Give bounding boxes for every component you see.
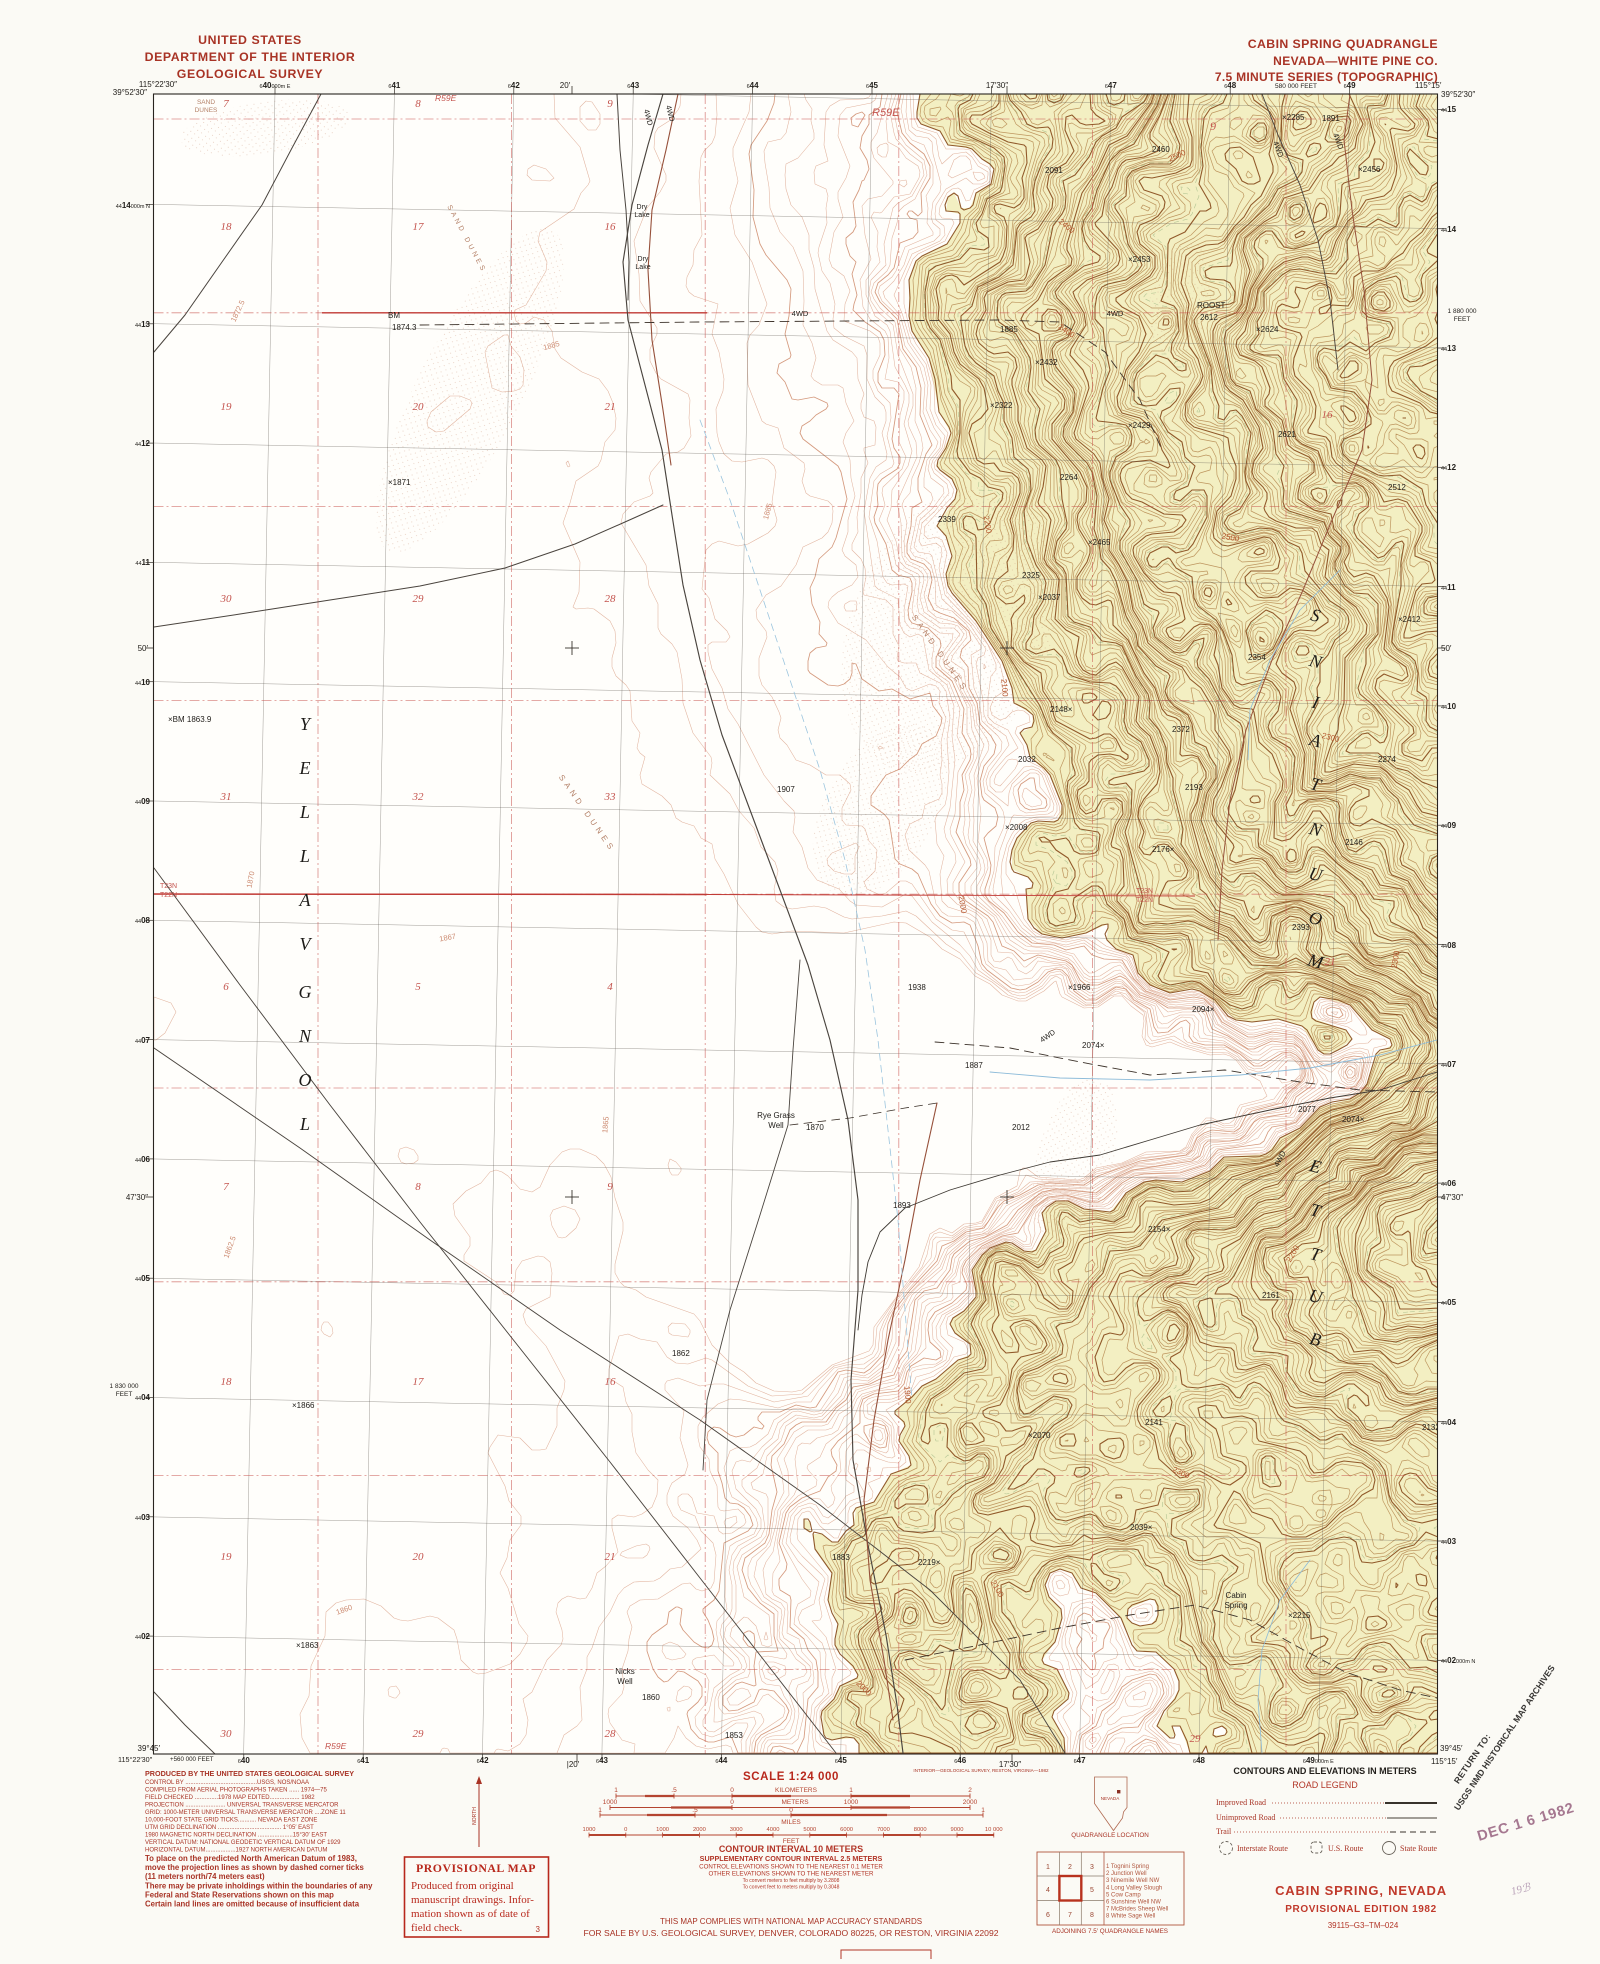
svg-text:move the projection lines as s: move the projection lines as shown by da… [145,1863,364,1872]
svg-text:7: 7 [1068,1912,1072,1919]
svg-text:×1863: ×1863 [296,1641,319,1650]
svg-text:×2624: ×2624 [1256,325,1279,334]
svg-text:PROVISIONAL MAP: PROVISIONAL MAP [416,1861,536,1875]
svg-text:Rye Grass: Rye Grass [757,1111,795,1120]
svg-text:0: 0 [730,1787,734,1794]
svg-text:1870: 1870 [806,1123,824,1132]
svg-text:2612: 2612 [1200,313,1218,322]
svg-text:FEET: FEET [116,1391,133,1398]
svg-text:2146: 2146 [1345,838,1363,847]
svg-text:2325: 2325 [1022,571,1040,580]
svg-text:1 880 000: 1 880 000 [1448,308,1477,315]
svg-text:PRODUCED BY THE UNITED STATES: PRODUCED BY THE UNITED STATES GEOLOGICAL… [145,1769,354,1778]
svg-text:32: 32 [412,791,425,803]
svg-text:2077: 2077 [1298,1105,1316,1114]
svg-text:6: 6 [1046,1912,1050,1919]
svg-text:7: 7 [223,1181,229,1193]
svg-text:39115–G3–TM–024: 39115–G3–TM–024 [1328,1921,1399,1930]
svg-text:8: 8 [1090,1912,1094,1919]
svg-text:NEVADA: NEVADA [1101,1796,1120,1801]
svg-text:6: 6 [223,981,229,993]
svg-text:HORIZONTAL DATUM..............: HORIZONTAL DATUM..................1927 N… [145,1848,327,1854]
svg-text:SCALE 1:24 000: SCALE 1:24 000 [743,1771,839,1783]
svg-text:×2465: ×2465 [1088,538,1111,547]
svg-text:2621: 2621 [1278,430,1296,439]
svg-text:39°45′: 39°45′ [1440,1744,1463,1753]
svg-text:PROJECTION ...................: PROJECTION ........................ UNIV… [145,1803,339,1809]
svg-text:31: 31 [220,791,232,803]
svg-text:×2322: ×2322 [990,401,1013,410]
svg-text:9: 9 [607,1181,613,1193]
svg-text:2512: 2512 [1388,483,1406,492]
svg-text:NORTH: NORTH [472,1807,478,1825]
svg-text:CABIN SPRING QUADRANGLE: CABIN SPRING QUADRANGLE [1248,37,1438,51]
svg-text:VERTICAL DATUM: NATIONAL GEODE: VERTICAL DATUM: NATIONAL GEODETIC VERTIC… [145,1840,341,1846]
svg-text:Lake: Lake [634,212,649,219]
svg-text:4: 4 [607,981,613,993]
svg-text:1: 1 [1046,1864,1050,1871]
svg-text:GRID: 1000-METER UNIVERSAL TRA: GRID: 1000-METER UNIVERSAL TRANSVERSE ME… [145,1810,346,1816]
svg-text:Well: Well [768,1121,784,1130]
svg-text:CONTOUR INTERVAL 10 METERS: CONTOUR INTERVAL 10 METERS [719,1844,863,1854]
svg-text:2074×: 2074× [1342,1115,1365,1124]
svg-text:29: 29 [413,593,425,605]
svg-text:30: 30 [220,1728,233,1740]
svg-text:Dry: Dry [638,256,649,263]
svg-text:N: N [298,1026,312,1046]
svg-text:16: 16 [1322,409,1334,421]
svg-text:manuscript drawings. Infor-: manuscript drawings. Infor- [411,1894,534,1906]
svg-text:To convert feet to meters mult: To convert feet to meters multiply by 0.… [743,1885,840,1891]
svg-text:Certain land lines are omitted: Certain land lines are omitted because o… [145,1900,360,1909]
svg-text:×1866: ×1866 [292,1401,315,1410]
svg-text:Improved Road: Improved Road [1216,1798,1266,1807]
svg-text:(11 meters north/74 meters eas: (11 meters north/74 meters east) [145,1872,265,1881]
svg-text:3000: 3000 [730,1827,743,1833]
svg-text:1874.3: 1874.3 [392,323,417,332]
svg-text:PROVISIONAL EDITION 1982: PROVISIONAL EDITION 1982 [1285,1904,1436,1915]
svg-text:CABIN SPRING, NEVADA: CABIN SPRING, NEVADA [1275,1883,1447,1898]
svg-text:115°15′: 115°15′ [1431,1757,1458,1766]
svg-text:×2453: ×2453 [1128,255,1151,264]
svg-text:1000: 1000 [844,1799,859,1806]
svg-text:CONTROL ELEVATIONS SHOWN TO TH: CONTROL ELEVATIONS SHOWN TO THE NEAREST … [699,1864,883,1871]
svg-text:4000: 4000 [767,1827,780,1833]
svg-text:2393: 2393 [1292,923,1310,932]
svg-text:CONTROL BY ...................: CONTROL BY .............................… [145,1780,309,1786]
svg-text:16: 16 [605,1376,617,1388]
svg-text:FEET: FEET [1454,316,1471,323]
svg-text:29: 29 [413,1728,425,1740]
svg-text:2012: 2012 [1012,1123,1030,1132]
svg-text:5 Cow Camp: 5 Cow Camp [1106,1892,1141,1898]
svg-text:9: 9 [607,98,613,110]
svg-text:L: L [299,1114,310,1134]
svg-text:1862: 1862 [672,1349,690,1358]
svg-text:2094×: 2094× [1192,1005,1215,1014]
svg-text:1887: 1887 [965,1061,983,1070]
svg-text:mation shown as of date of: mation shown as of date of [411,1908,530,1920]
svg-text:2074×: 2074× [1082,1041,1105,1050]
svg-text:9: 9 [1210,119,1216,133]
svg-text:21: 21 [605,1551,616,1563]
svg-text:39°45′: 39°45′ [138,1744,161,1753]
svg-text:2: 2 [968,1787,972,1794]
svg-text:2148×: 2148× [1050,705,1073,714]
svg-text:R59E: R59E [872,107,900,119]
svg-text:4 Long Valley Slough: 4 Long Valley Slough [1106,1885,1162,1891]
svg-text:BM: BM [388,311,400,320]
svg-text:4WD: 4WD [792,309,809,318]
svg-text:State Route: State Route [1400,1844,1438,1853]
svg-text:1: 1 [849,1787,853,1794]
svg-text:6 Sunshine Well NW: 6 Sunshine Well NW [1106,1900,1161,1906]
svg-text:2274: 2274 [1378,755,1396,764]
svg-text:2354: 2354 [1248,653,1266,662]
svg-text:30: 30 [220,593,233,605]
svg-text:580 000 FEET: 580 000 FEET [1275,83,1317,90]
svg-text:T22N: T22N [160,892,177,899]
svg-text:×2429: ×2429 [1128,421,1151,430]
svg-text:1000: 1000 [656,1827,669,1833]
svg-text:20′: 20′ [560,81,571,90]
svg-text:1: 1 [614,1787,618,1794]
svg-text:A: A [299,890,312,910]
svg-text:19: 19 [221,401,233,413]
svg-text:10,000-FOOT STATE GRID TICKS..: 10,000-FOOT STATE GRID TICKS........... … [145,1818,317,1824]
svg-text:5000: 5000 [803,1827,816,1833]
svg-text:3: 3 [536,1925,541,1934]
svg-text:2372: 2372 [1172,725,1190,734]
svg-text:SAND: SAND [197,99,215,106]
svg-text:20: 20 [413,1551,425,1563]
svg-text:2154×: 2154× [1148,1225,1171,1234]
svg-text:ADJOINING 7.5′ QUADRANGLE NAME: ADJOINING 7.5′ QUADRANGLE NAMES [1052,1928,1168,1935]
svg-text:1980 MAGNETIC NORTH DECLINATIO: 1980 MAGNETIC NORTH DECLINATION ........… [145,1833,327,1839]
svg-text:28: 28 [605,593,617,605]
svg-text:DEPARTMENT OF THE INTERIOR: DEPARTMENT OF THE INTERIOR [145,50,356,64]
svg-text:7: 7 [223,98,229,110]
svg-text:1000: 1000 [603,1799,618,1806]
svg-text:2339: 2339 [938,515,956,524]
svg-text:2091: 2091 [1045,166,1063,175]
svg-text:2100: 2100 [999,679,1010,698]
svg-text:2000: 2000 [693,1827,706,1833]
svg-text:×BM 1863.9: ×BM 1863.9 [168,715,212,724]
svg-text:4: 4 [1046,1887,1050,1894]
svg-text:Spring: Spring [1224,1601,1247,1610]
svg-text:1860: 1860 [642,1693,660,1702]
svg-text:0: 0 [730,1799,734,1806]
svg-text:20: 20 [413,401,425,413]
svg-text:2193: 2193 [1185,783,1203,792]
svg-text:×2412: ×2412 [1398,615,1421,624]
svg-text:Unimproved Road: Unimproved Road [1216,1813,1275,1822]
svg-text:1853: 1853 [725,1731,743,1740]
svg-text:×2432: ×2432 [1035,358,1058,367]
svg-text:1883: 1883 [832,1553,850,1562]
svg-text:NEVADA—WHITE PINE CO.: NEVADA—WHITE PINE CO. [1273,54,1438,68]
svg-text:|20′: |20′ [567,1760,580,1769]
svg-text:There may be private inholding: There may be private inholdings within t… [145,1882,373,1891]
svg-text:50′: 50′ [138,644,149,653]
svg-text:47′30″: 47′30″ [126,1193,148,1202]
svg-text:UNITED STATES: UNITED STATES [198,33,302,47]
svg-text:COMPILED FROM AERIAL PHOTOGRAP: COMPILED FROM AERIAL PHOTOGRAPHS TAKEN .… [145,1788,327,1794]
svg-text:47′30″: 47′30″ [1441,1193,1463,1202]
svg-text:8 White Sage Well: 8 White Sage Well [1106,1914,1155,1920]
svg-text:INTERIOR—GEOLOGICAL SURVEY, RE: INTERIOR—GEOLOGICAL SURVEY, RESTON, VIRG… [913,1768,1049,1773]
svg-text:ROOST: ROOST [1197,301,1226,310]
svg-text:1900: 1900 [902,1386,913,1405]
svg-text:1893: 1893 [893,1201,911,1210]
svg-text:3: 3 [1090,1864,1094,1871]
svg-text:T23N: T23N [160,883,177,890]
svg-text:2264: 2264 [1060,473,1078,482]
svg-text:16: 16 [605,221,617,233]
svg-text:2000: 2000 [963,1799,978,1806]
svg-text:39°52′30″: 39°52′30″ [1441,90,1475,99]
svg-text:×2285: ×2285 [1282,113,1305,122]
svg-text:8: 8 [415,98,421,110]
svg-text:17′30″: 17′30″ [986,81,1008,90]
svg-text:Produced from original: Produced from original [411,1880,514,1892]
svg-text:Cabin: Cabin [1226,1591,1247,1600]
svg-text:×2070: ×2070 [1028,1431,1051,1440]
svg-text:8: 8 [415,1181,421,1193]
svg-text:+560 000 FEET: +560 000 FEET [170,1756,214,1763]
svg-text:2 Junction Well: 2 Junction Well [1106,1871,1147,1877]
svg-text:MILES: MILES [781,1819,801,1826]
svg-text:Well: Well [617,1677,633,1686]
svg-text:To convert meters to feet mult: To convert meters to feet multiply by 3.… [743,1878,840,1884]
svg-text:×2215: ×2215 [1288,1611,1311,1620]
svg-text:4WD: 4WD [1107,309,1124,318]
svg-text:T22N: T22N [1136,897,1153,904]
svg-text:6000: 6000 [840,1827,853,1833]
svg-text:1891: 1891 [1322,114,1340,123]
svg-text:Trail: Trail [1216,1827,1232,1836]
svg-text:21: 21 [605,401,616,413]
svg-text:7000: 7000 [877,1827,890,1833]
svg-text:L: L [299,846,310,866]
svg-text:Lake: Lake [635,264,650,271]
svg-text:2039×: 2039× [1130,1523,1153,1532]
svg-text:KILOMETERS: KILOMETERS [775,1787,818,1794]
svg-text:DUNES: DUNES [195,107,218,114]
svg-text:0: 0 [624,1827,627,1833]
svg-text:1865: 1865 [600,1116,610,1133]
svg-text:R59E: R59E [325,1741,347,1751]
svg-text:Interstate Route: Interstate Route [1237,1844,1288,1853]
svg-text:×2456: ×2456 [1358,165,1381,174]
svg-text:×1871: ×1871 [388,478,411,487]
svg-text:FIELD CHECKED ..............19: FIELD CHECKED ..............1978 MAP EDI… [145,1795,315,1801]
svg-text:1885: 1885 [1000,325,1018,334]
svg-text:To place on the predicted Nort: To place on the predicted North American… [145,1854,357,1863]
svg-text:1907: 1907 [777,785,795,794]
svg-text:Federal and State Reservations: Federal and State Reservations shown on … [145,1891,334,1900]
svg-text:ROAD LEGEND: ROAD LEGEND [1292,1780,1358,1790]
svg-text:2161: 2161 [1262,1291,1280,1300]
svg-text:39°52′30″: 39°52′30″ [113,88,147,97]
svg-text:.5: .5 [671,1787,677,1794]
svg-text:5: 5 [415,981,421,993]
svg-text:1 830 000: 1 830 000 [110,1383,139,1390]
svg-text:UTM GRID DECLINATION .........: UTM GRID DECLINATION ...................… [145,1825,314,1831]
svg-text:O: O [299,1070,312,1090]
svg-text:2176×: 2176× [1152,845,1175,854]
svg-text:7.5 MINUTE SERIES (TOPOGRAPHIC: 7.5 MINUTE SERIES (TOPOGRAPHIC) [1215,70,1438,84]
svg-text:Nicks: Nicks [615,1667,635,1676]
svg-text:2219×: 2219× [918,1558,941,1567]
svg-text:×1966: ×1966 [1068,983,1091,992]
svg-text:17: 17 [413,221,425,233]
svg-text:10 000: 10 000 [985,1827,1003,1833]
svg-text:17: 17 [413,1376,425,1388]
svg-text:1938: 1938 [908,983,926,992]
svg-text:50′: 50′ [1441,644,1452,653]
svg-text:FOR SALE BY U.S. GEOLOGICAL SU: FOR SALE BY U.S. GEOLOGICAL SURVEY, DENV… [583,1928,998,1938]
svg-text:T23N: T23N [1136,888,1153,895]
svg-text:U.S. Route: U.S. Route [1328,1844,1364,1853]
svg-text:1000: 1000 [583,1827,596,1833]
svg-text:33: 33 [604,791,617,803]
svg-text:OTHER ELEVATIONS SHOWN TO THE: OTHER ELEVATIONS SHOWN TO THE NEAREST ME… [708,1871,874,1878]
svg-text:GEOLOGICAL SURVEY: GEOLOGICAL SURVEY [177,67,323,81]
svg-text:field check.: field check. [411,1922,463,1934]
svg-text:Dry: Dry [637,204,648,211]
svg-text:SUPPLEMENTARY CONTOUR INTERVAL: SUPPLEMENTARY CONTOUR INTERVAL 2.5 METER… [700,1854,883,1863]
svg-text:9000: 9000 [951,1827,964,1833]
svg-text:1 Tognini Spring: 1 Tognini Spring [1106,1864,1149,1870]
svg-text:CONTOURS AND ELEVATIONS IN MET: CONTOURS AND ELEVATIONS IN METERS [1233,1766,1416,1776]
svg-text:L: L [299,802,310,822]
svg-text:2: 2 [1068,1864,1072,1871]
svg-text:28: 28 [605,1728,617,1740]
svg-text:8000: 8000 [914,1827,927,1833]
svg-text:3 Ninemile Well NW: 3 Ninemile Well NW [1106,1878,1160,1884]
svg-text:7 McBrides Sheep Well: 7 McBrides Sheep Well [1106,1907,1168,1913]
svg-text:19: 19 [221,1551,233,1563]
svg-text:QUADRANGLE LOCATION: QUADRANGLE LOCATION [1071,1832,1149,1839]
svg-text:18: 18 [221,221,233,233]
svg-text:29: 29 [1190,1733,1202,1745]
svg-text:E: E [299,758,311,778]
svg-text:THIS MAP COMPLIES WITH NATIONA: THIS MAP COMPLIES WITH NATIONAL MAP ACCU… [660,1917,922,1926]
svg-text:×2008: ×2008 [1005,823,1028,832]
svg-text:2460: 2460 [1152,145,1170,154]
svg-text:115°22′30″: 115°22′30″ [118,1755,153,1764]
svg-text:2141: 2141 [1145,1418,1163,1427]
svg-text:2032: 2032 [1018,755,1036,764]
svg-text:METERS: METERS [781,1799,809,1806]
svg-text:18: 18 [221,1376,233,1388]
svg-text:5: 5 [1090,1887,1094,1894]
svg-text:21: 21 [1325,956,1336,968]
svg-text:G: G [299,982,312,1002]
svg-text:×2037: ×2037 [1038,593,1061,602]
